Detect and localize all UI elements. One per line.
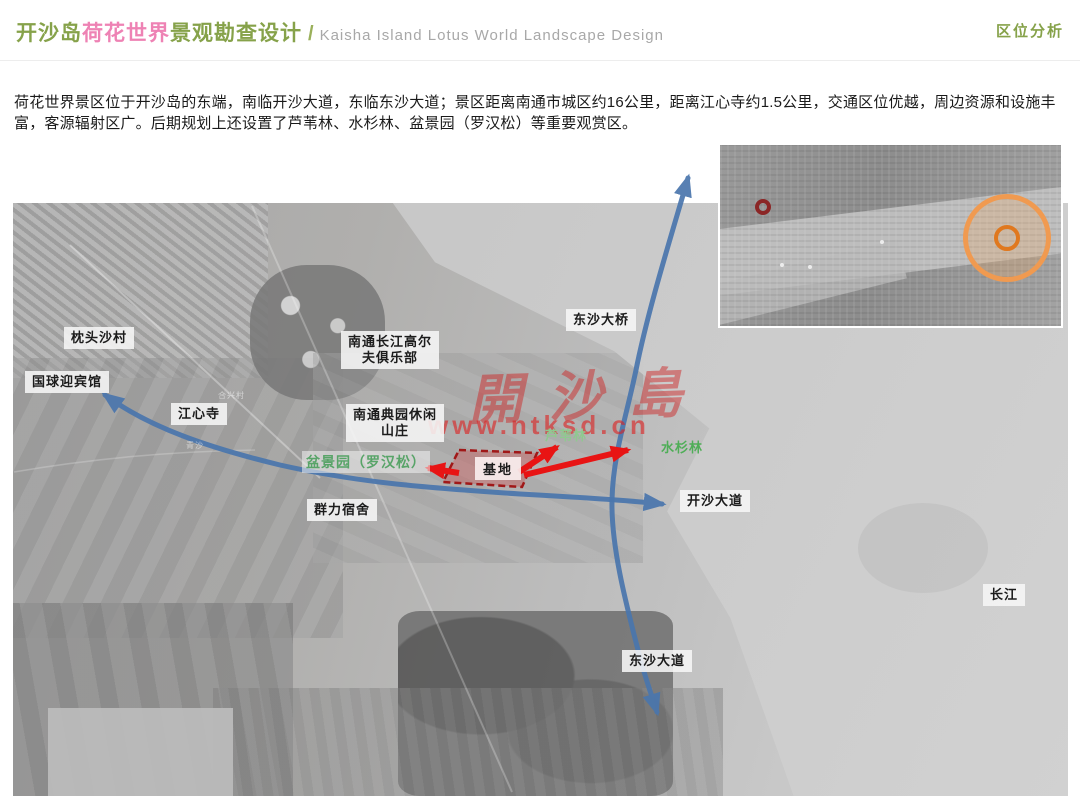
inset-dot: [880, 240, 884, 244]
site-label: 基地: [475, 457, 521, 480]
intro-paragraph: 荷花世界景区位于开沙岛的东端，南临开沙大道，东临东沙大道；景区距离南通市城区约1…: [14, 92, 1066, 134]
title-separator: /: [308, 23, 314, 45]
slide-page: 开沙岛荷花世界景观勘查设计/Kaisha Island Lotus World …: [0, 0, 1080, 810]
inset-dot: [780, 263, 784, 267]
header-divider: [0, 60, 1080, 61]
place-label-leisure-resort: 南通典园休闲 山庄: [346, 404, 444, 442]
place-label-dongsha-bridge: 东沙大桥: [566, 309, 636, 331]
title-zh-part-lotus-world: 荷花世界: [82, 22, 170, 45]
title-english: Kaisha Island Lotus World Landscape Desi…: [320, 27, 664, 44]
map-texture-fields-west: [13, 358, 343, 638]
inset-city-center-ring: [994, 225, 1020, 251]
map-texture-shoal: [858, 503, 988, 593]
tiny-label-hexing-village: 合兴村: [218, 390, 245, 401]
inset-dot: [808, 265, 812, 269]
place-label-yangtze-river: 长江: [983, 584, 1025, 606]
place-label-qunli-dormitory: 群力宿舍: [307, 499, 377, 521]
place-label-jiangxin-temple: 江心寺: [171, 403, 227, 425]
feature-label-reed-forest: 芦苇林: [541, 424, 591, 445]
inset-location-map: [718, 143, 1063, 328]
map-texture-dock-basin: [48, 708, 233, 796]
watermark-url: www.ntksd.cn: [428, 410, 650, 441]
place-label-kaisha-avenue: 开沙大道: [680, 490, 750, 512]
map-texture-fields-south: [213, 688, 723, 796]
place-label-zhentou-village: 枕头沙村: [64, 327, 134, 349]
section-label: 区位分析: [996, 20, 1064, 41]
place-label-guoqiu-hotel: 国球迎宾馆: [25, 371, 109, 393]
inset-site-marker-ring: [755, 199, 771, 215]
place-label-golf-club: 南通长江高尔 夫俱乐部: [341, 331, 439, 369]
page-title: 开沙岛荷花世界景观勘查设计/Kaisha Island Lotus World …: [16, 17, 664, 47]
title-zh-part-island: 开沙岛: [16, 22, 82, 45]
tiny-label-qingsha: 青沙: [186, 440, 204, 451]
feature-label-metasequoia-forest: 水杉林: [657, 436, 707, 457]
feature-label-penjing-garden: 盆景园（罗汉松）: [302, 451, 430, 473]
header: 开沙岛荷花世界景观勘查设计/Kaisha Island Lotus World …: [0, 0, 1080, 60]
place-label-dongsha-avenue: 东沙大道: [622, 650, 692, 672]
map-texture-village: [13, 203, 268, 378]
title-zh-part-survey-design: 景观勘查设计: [170, 22, 302, 45]
